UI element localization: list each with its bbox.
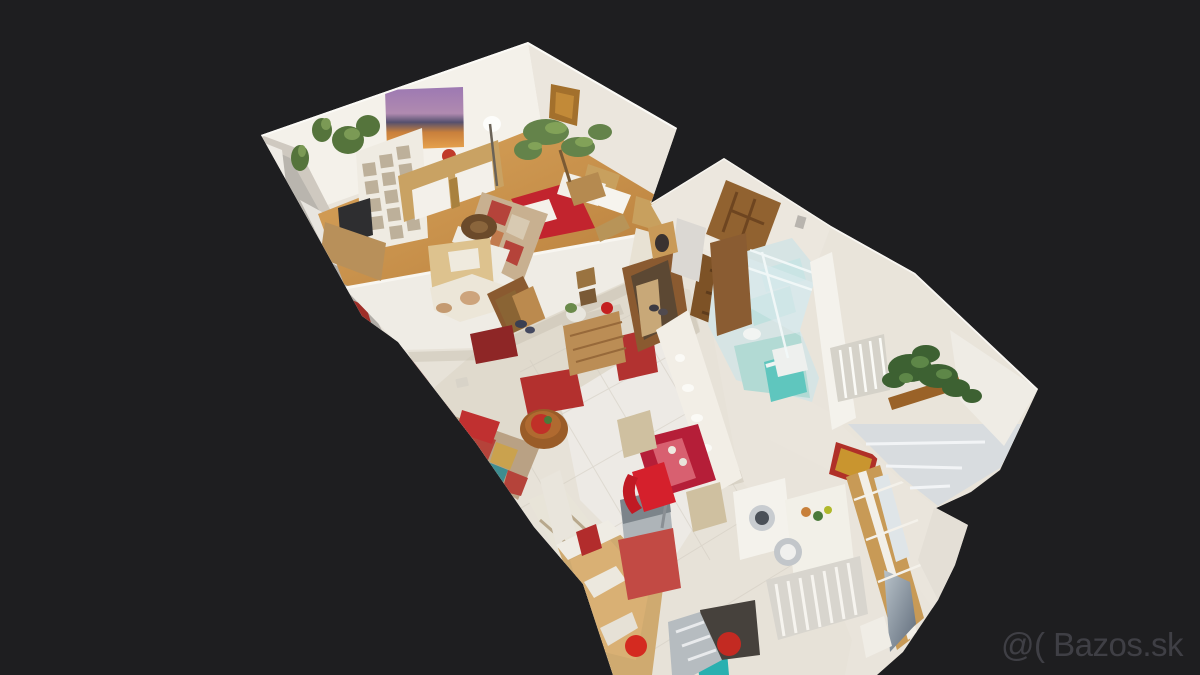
svg-text:@( Bazos.sk: @( Bazos.sk — [1001, 626, 1184, 663]
